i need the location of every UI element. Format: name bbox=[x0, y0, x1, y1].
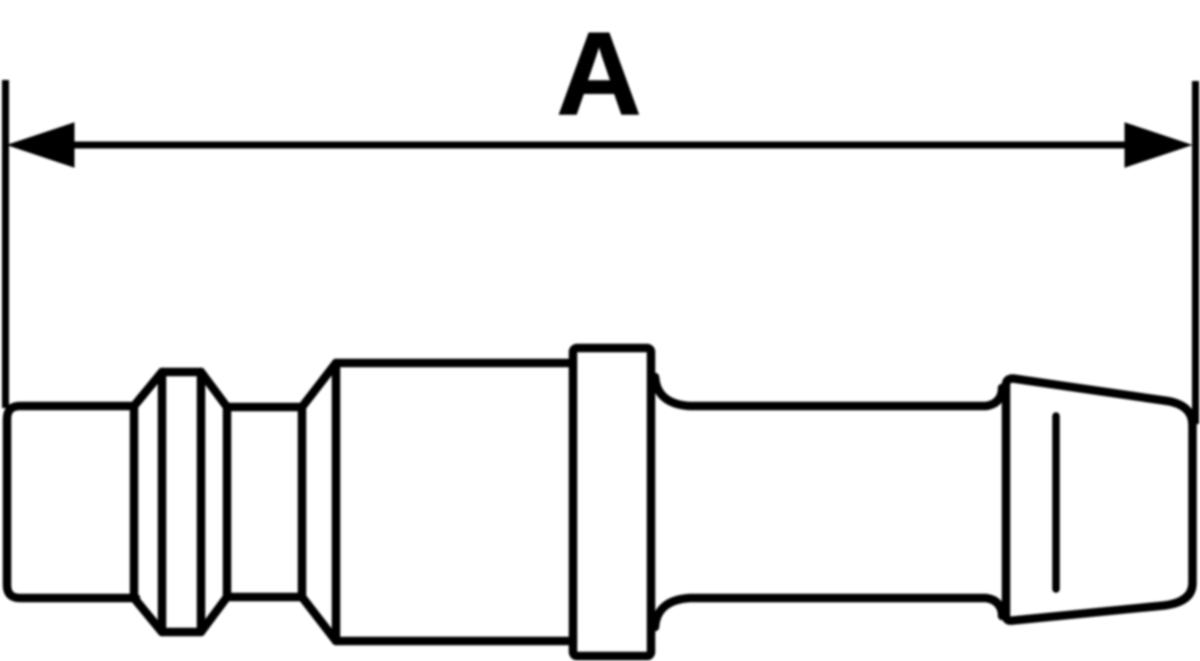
svg-text:A: A bbox=[556, 8, 641, 140]
